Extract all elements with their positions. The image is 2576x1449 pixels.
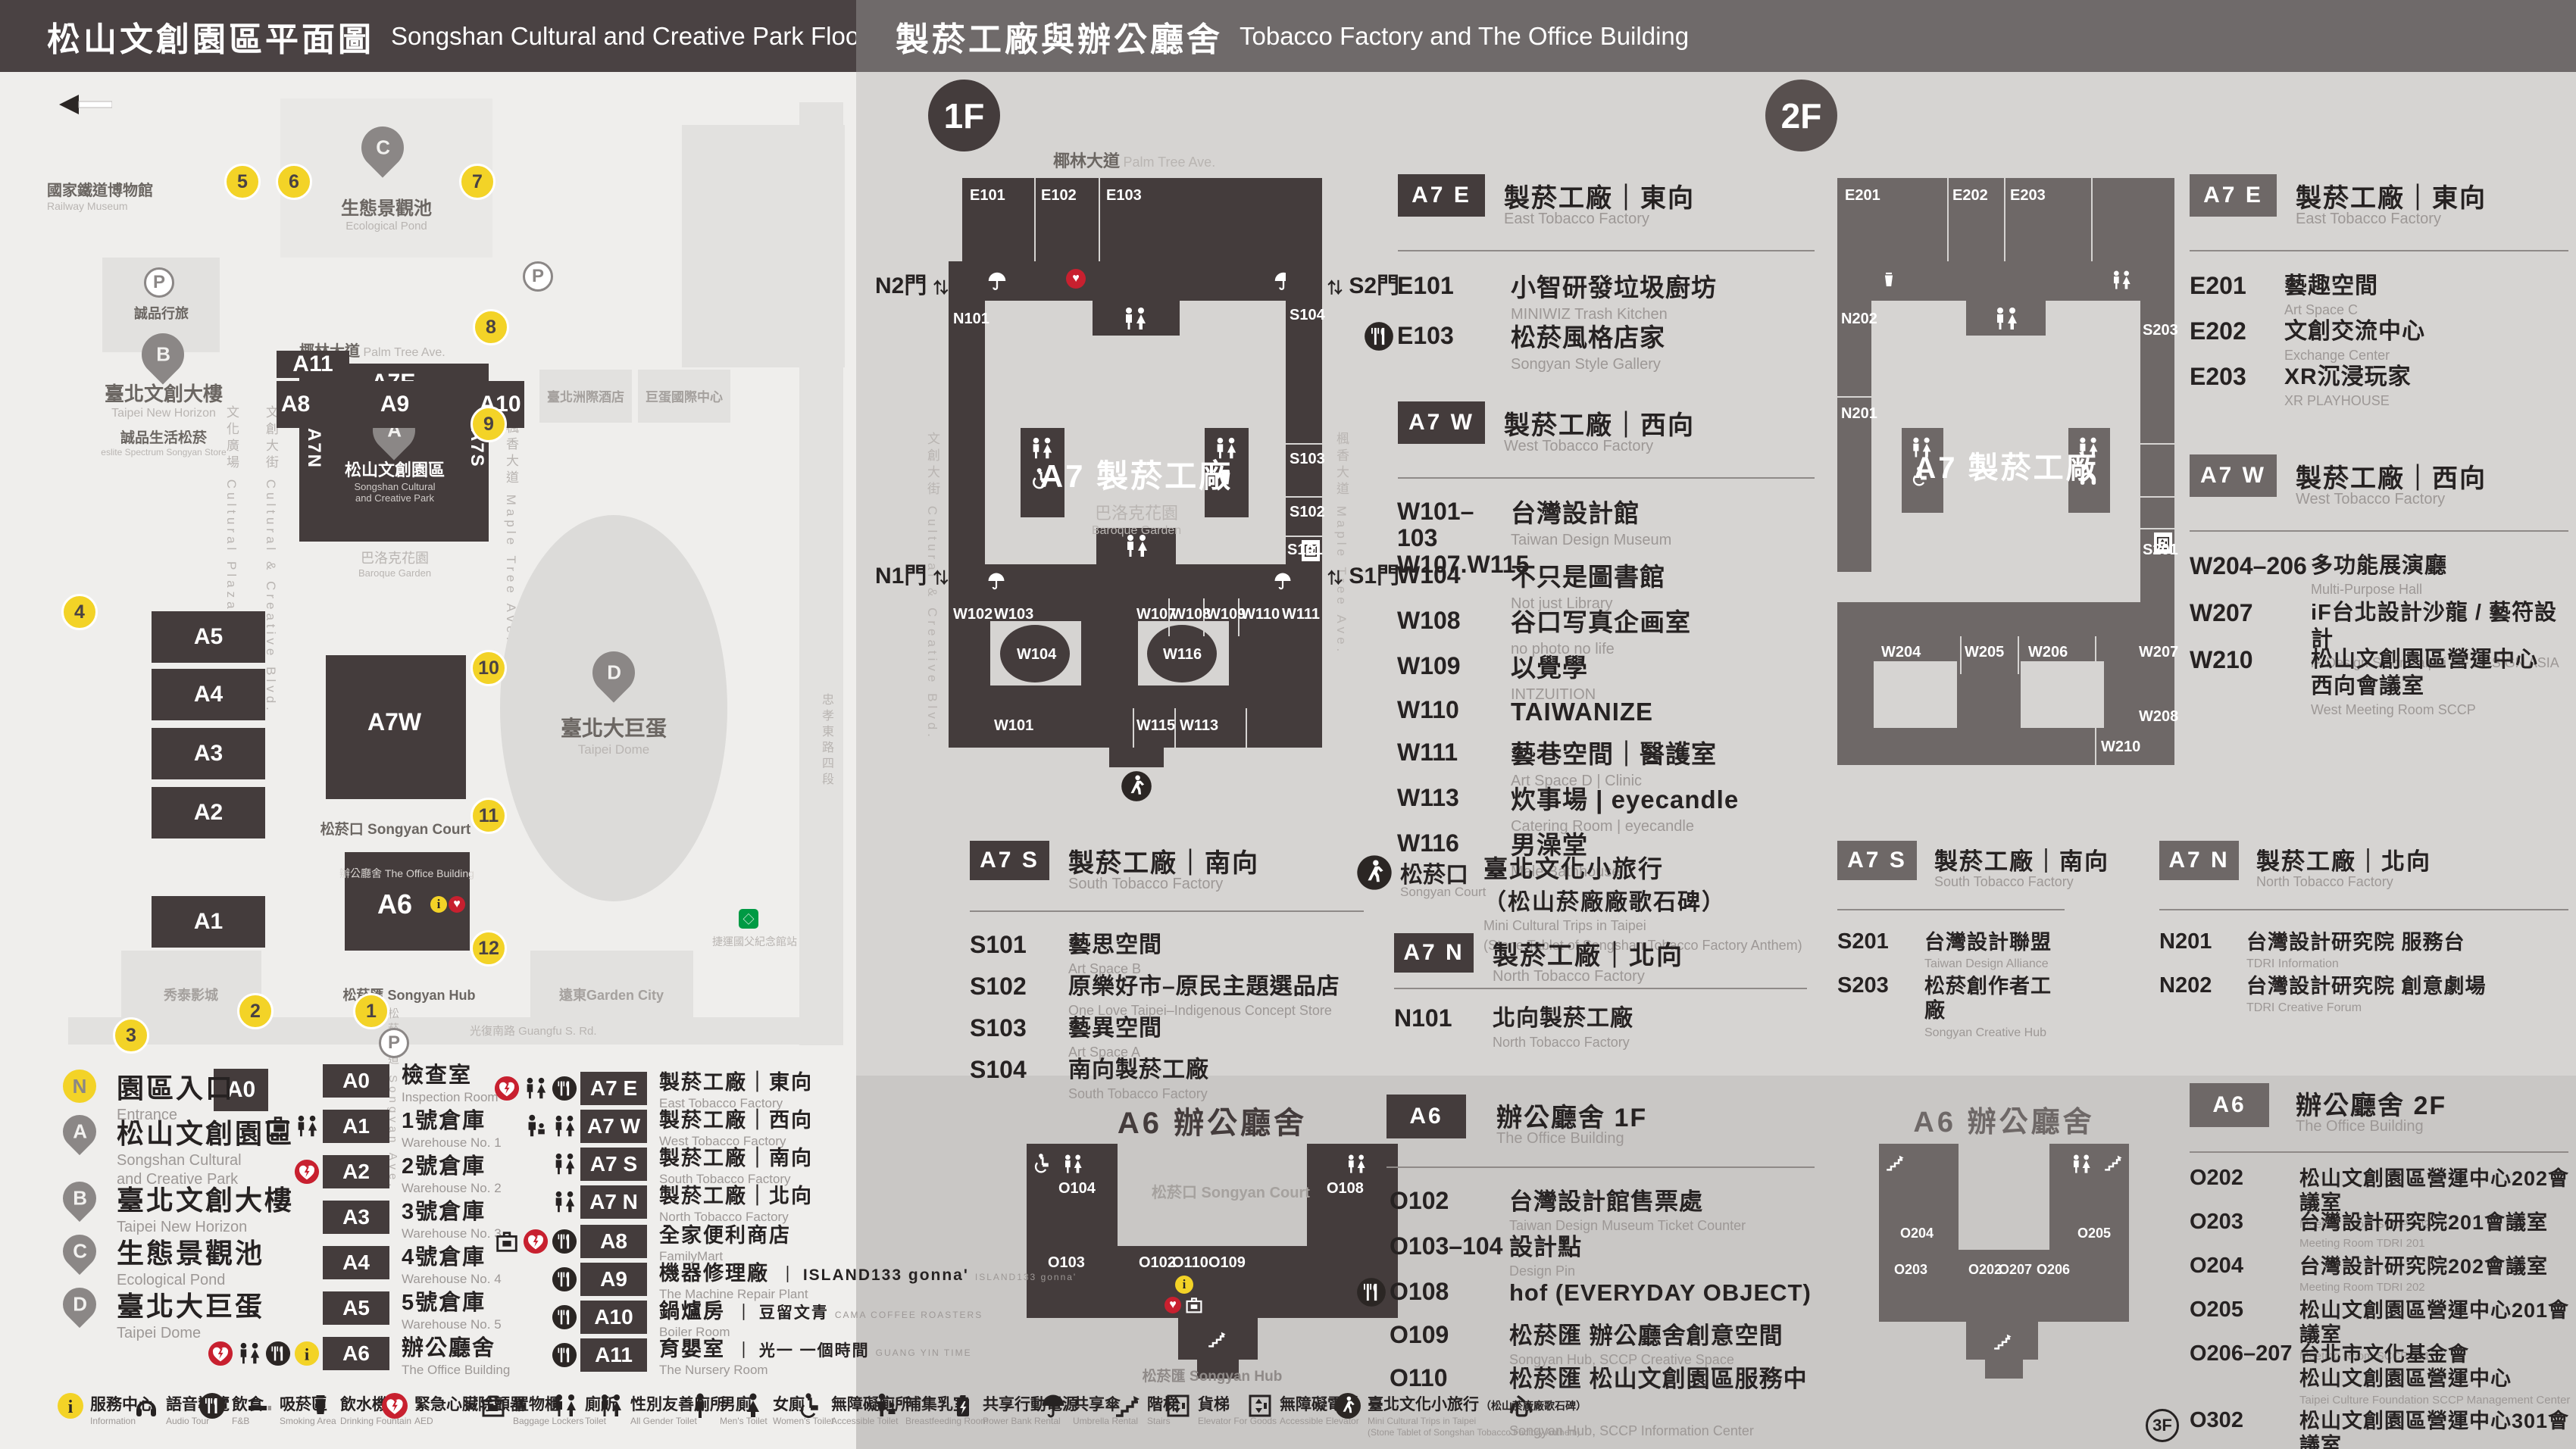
building-code-badge: A11 <box>580 1338 647 1372</box>
legend-pin-badge: N <box>63 1070 96 1103</box>
songyan-court-walk-icon <box>1121 770 1152 802</box>
entrance-number-badge: 4 <box>61 594 98 630</box>
park-map: 國家鐵道博物館 Railway Museum C 生態景觀池 Ecologica… <box>0 72 856 1057</box>
entrance-number-badge: 11 <box>470 798 507 834</box>
a7n-title-zh-2f: 製菸工廠｜北向 <box>2256 842 2431 876</box>
stairs-icon <box>2103 1153 2123 1173</box>
a7e-title-zh: 製菸工廠｜東向 <box>1504 177 1695 214</box>
map-a6-2f: A6 辦公廳舍 O204O205O203O202O207O206 <box>1879 1083 2129 1394</box>
umbrella-icon <box>1273 571 1293 591</box>
list-1f-a7n: A7 N 製菸工廠｜北向 North Tobacco Factory N101 … <box>1394 933 1818 1077</box>
parking-icon: P <box>144 267 174 298</box>
facility-icon <box>307 1392 334 1419</box>
maple-ave-label-1f: 楓香大道 Maple Tree Ave. <box>1332 432 1351 655</box>
map-room-label: O102 <box>1139 1254 1176 1272</box>
a7w-title-en-2f: West Tobacco Factory <box>2296 491 2445 508</box>
a6-badge-2f: A6 <box>2190 1083 2269 1127</box>
baroque-garden-label-1f: 巴洛克花園 Baroque Garden <box>1092 500 1181 538</box>
map-room-label: S201 <box>2143 542 2178 559</box>
facility-icons <box>205 1113 320 1139</box>
park-building-block: A11 <box>277 351 349 378</box>
room-list-item: N201 台灣設計研究院 服務台TDRI Information <box>2159 930 2465 972</box>
zhongxiao-rd-label: 忠孝東路四段 <box>817 693 835 789</box>
a6-title-en: The Office Building <box>1496 1130 1624 1148</box>
facility-icon <box>872 1392 899 1419</box>
parking-icon: P <box>379 1028 409 1058</box>
aed-icon: ♥ <box>1066 269 1086 289</box>
toilet-icon <box>1121 305 1149 333</box>
court-line1: 臺北文化小旅行 <box>1483 850 1664 885</box>
legend-pin-badge: D <box>56 1281 103 1328</box>
map-room-label: E201 <box>1845 187 1880 205</box>
baroque-garden-label: 巴洛克花園 Baroque Garden <box>358 548 431 579</box>
facility-icon <box>739 1392 767 1419</box>
mrt-logo-icon: ◇ <box>739 909 758 929</box>
entrance-number-badge: 8 <box>473 309 509 345</box>
facility-icons <box>462 1076 577 1101</box>
cultural-plaza-label: 文化廣場 Cultural Plaza <box>222 405 241 613</box>
dome-center-label: 巨蛋國際中心 <box>646 386 723 405</box>
room-list-item: S201 台灣設計聯盟Taiwan Design Alliance <box>1837 930 2052 972</box>
legend-building-row: A3 3號倉庫 Warehouse No. 3 <box>205 1198 502 1236</box>
map-room-label: O202 <box>1968 1262 2002 1278</box>
map-room-label: O206 <box>2037 1262 2070 1278</box>
room-list-item: O103–104 設計點Design Pin <box>1356 1233 1582 1280</box>
umbrella-icon <box>986 270 1008 292</box>
list-2f-a7w: A7 W 製菸工廠｜西向 West Tobacco Factory W204–2… <box>2190 454 2576 773</box>
legend-building-row: A4 4號倉庫 Warehouse No. 4 <box>205 1244 502 1282</box>
map-a6-1f: A6 辦公廳舍 松菸口 Songyan Court i ♥ 松菸匯 Songya… <box>1027 1083 1398 1386</box>
entrance-number-badge: 3 <box>113 1017 149 1054</box>
map-room-label: W107 <box>1136 606 1176 623</box>
a6-map-title-2f: A6 辦公廳舍 <box>1913 1098 2094 1140</box>
legend-building-row: A11 育嬰室｜ 光一 一個時間GUANG YIN TIME The Nurse… <box>462 1336 972 1374</box>
umbrella-icon <box>986 571 1006 591</box>
room-list-item: O302 松山文創園區營運中心301會議室Meeting Room SCCP 3… <box>2190 1409 2576 1449</box>
map-room-label: W206 <box>2028 644 2068 661</box>
room-list-item: E103 松菸風格店家Songyan Style Gallery <box>1364 323 1665 376</box>
mrt-station-label: 捷運國父紀念館站 <box>712 934 797 949</box>
a7w-badge-2f: A7 W <box>2190 454 2277 497</box>
building-code-badge: A2 <box>323 1155 389 1188</box>
park-building-block: A3 <box>152 728 265 779</box>
legend-building-row: A7 S 製菸工廠｜南向 South Tobacco Factory <box>462 1145 830 1183</box>
parking-icon: P <box>523 261 553 292</box>
page-title-en: Songshan Cultural and Creative Park Floo… <box>391 22 924 51</box>
list-1f-a7w: A7 W 製菸工廠｜西向 West Tobacco Factory W101–1… <box>1364 401 1818 901</box>
room-list-item: N202 台灣設計研究院 創意劇場TDRI Creative Forum <box>2159 974 2487 1016</box>
toilet-icon <box>1993 305 2020 333</box>
list-2f-a7e: A7 E 製菸工廠｜東向 East Tobacco Factory E201 藝… <box>2190 174 2576 432</box>
legend-building-row: A10 鍋爐房｜ 豆留文青CAMA COFFEE ROASTERS Boiler… <box>462 1298 983 1336</box>
map-room-label: W101 <box>994 717 1033 735</box>
a6-map-title: A6 辦公廳舍 <box>1118 1098 1307 1142</box>
facility-icon <box>199 1392 226 1419</box>
map-room-label: N201 <box>1841 405 1877 423</box>
legend-building-row: A9 機器修理廠｜ ISLAND133 gonna'ISLAND133 gonn… <box>462 1260 1077 1298</box>
map-room-label: O205 <box>2077 1226 2111 1241</box>
facility-icon <box>1246 1392 1274 1419</box>
stairs-icon <box>1207 1329 1227 1349</box>
map-room-label: E103 <box>1106 187 1142 205</box>
aed-icon: ♥ <box>449 896 465 913</box>
railway-museum-label: 國家鐵道博物館 Railway Museum <box>47 178 153 212</box>
toilet-icon <box>2110 269 2133 292</box>
list-a6-1f: A6 辦公廳舍 1F The Office Building O102 台灣設計… <box>1356 1091 1826 1409</box>
legend-building-row: A1 1號倉庫 Warehouse No. 1 <box>205 1107 502 1145</box>
park-building-block: A9 <box>317 381 473 428</box>
a7w-badge: A7 W <box>1398 401 1485 444</box>
legend-pin-badge: B <box>56 1175 103 1222</box>
new-horizon-label: 臺北文創大樓 Taipei New Horizon 誠品生活松菸 eslite … <box>101 379 226 457</box>
stairs-icon <box>1993 1332 2012 1351</box>
floor-badge-2f: 2F <box>1765 80 1837 151</box>
map-room-label: S104 <box>1290 307 1325 324</box>
park-building-block: A2 <box>152 787 265 838</box>
a7n-map-label: A7N <box>303 428 324 469</box>
hotel-label: 臺北洲際酒店 <box>547 386 624 405</box>
room-list-item: E101 小智研發垃圾廚坊MINIWIZ Trash Kitchen <box>1364 273 1717 326</box>
entrance-number-badge: 9 <box>470 406 507 442</box>
a7-center-label-2f: A7 製菸工廠 <box>1914 443 2098 487</box>
facility-icon <box>597 1392 624 1419</box>
facility-icons <box>205 1159 320 1185</box>
map-room-label: W102 <box>953 606 993 623</box>
map-room-label: W204 <box>1881 644 1921 661</box>
a7e-title-zh-2f: 製菸工廠｜東向 <box>2296 177 2487 214</box>
court-label: 松菸口 Songyan Court <box>1152 1180 1310 1202</box>
map-room-label: S102 <box>1290 504 1325 521</box>
entrance-number-badge: 12 <box>470 930 507 967</box>
header-left: 松山文創園區平面圖 Songshan Cultural and Creative… <box>0 0 856 72</box>
room-list-item: N101 北向製菸工廠North Tobacco Factory <box>1394 1005 1633 1051</box>
building-code-badge: A7 W <box>580 1110 647 1143</box>
map-room-label: E203 <box>2010 187 2046 205</box>
room-list-item: O108 hof (EVERYDAY OBJECT) <box>1356 1279 1812 1309</box>
map-2f: E201E202E203N202N201S203S201W204W205W206… <box>1837 178 2174 807</box>
legend-building-row: A7 E 製菸工廠｜東向 East Tobacco Factory <box>462 1070 830 1107</box>
aed-icon: ♥ <box>1165 1297 1181 1313</box>
garden-city-label: 遠東Garden City <box>559 985 664 1004</box>
facility-icons <box>462 1304 577 1330</box>
list-2f-a7n: A7 N 製菸工廠｜北向 North Tobacco Factory N201 … <box>2159 833 2576 1045</box>
palm-ave-label-1f: 椰林大道 Palm Tree Ave. <box>1053 148 1215 172</box>
legend-building-row: A5 5號倉庫 Warehouse No. 5 <box>205 1289 502 1327</box>
building-code-badge: A1 <box>323 1110 389 1143</box>
map-room-label: W113 <box>1180 717 1218 735</box>
legend-building-row: A0 檢查室 Inspection Room <box>205 1062 499 1100</box>
facility-icons <box>205 1341 320 1366</box>
map-room-label: O204 <box>1900 1226 1934 1241</box>
legend-strip-item: 臺北文化小旅行（松山菸廠廠歌石碑） Mini Cultural Trips in… <box>1334 1392 1587 1438</box>
floor-3f-badge: 3F <box>2146 1409 2179 1442</box>
facility-icon <box>133 1392 160 1419</box>
a7-center-label-1f: A7 製菸工廠 <box>1040 451 1233 497</box>
court-en1: Mini Cultural Trips in Taipei <box>1483 918 1646 934</box>
entrance-number-badge: 2 <box>237 993 274 1029</box>
a7n-badge: A7 N <box>1394 933 1474 973</box>
facility-icon <box>381 1392 408 1419</box>
section-title-en: Tobacco Factory and The Office Building <box>1240 22 1689 51</box>
a6-title-en-2f: The Office Building <box>2296 1118 2424 1135</box>
legend-building-row: A2 2號倉庫 Warehouse No. 2 <box>205 1153 502 1191</box>
map-room-label: S101 <box>1287 542 1323 559</box>
taipei-dome-label: 臺北大巨蛋 Taipei Dome <box>561 712 667 757</box>
facility-icons <box>462 1189 577 1215</box>
guangfu-rd-label: 光復南路 Guangfu S. Rd. <box>470 1023 597 1038</box>
list-a6-2f: A6 辦公廳舍 2F The Office Building 3F O202 松… <box>2190 1076 2576 1447</box>
map-room-label: O110 <box>1172 1254 1208 1272</box>
building-code-badge: A3 <box>323 1201 389 1234</box>
park-building-block: A8 <box>277 381 314 428</box>
court-line2: （松山菸廠廠歌石碑） <box>1483 883 1726 917</box>
facility-icon <box>57 1392 84 1419</box>
room-list-item: O203 台灣設計研究院201會議室Meeting Room TDRI 201 <box>2190 1210 2548 1251</box>
a7n-title-zh: 製菸工廠｜北向 <box>1493 935 1683 972</box>
a7e-badge: A7 E <box>1398 174 1485 217</box>
building-code-badge: A7 N <box>580 1185 647 1219</box>
map-room-label: W205 <box>1965 644 2004 661</box>
room-list-item: E202 文創交流中心Exchange Center <box>2190 318 2425 364</box>
a7s-title-zh-2f: 製菸工廠｜南向 <box>1934 842 2109 876</box>
building-code-badge: A6 <box>323 1337 389 1370</box>
facility-icon <box>480 1392 507 1419</box>
map-room-label: W210 <box>2101 739 2140 756</box>
park-building-block: A1 <box>152 896 265 948</box>
facility-icons <box>462 1266 577 1292</box>
list-2f-a7s: A7 S 製菸工廠｜南向 South Tobacco Factory S201 … <box>1837 833 2072 1045</box>
room-icon <box>1356 1277 1390 1307</box>
court-en: Songyan Court <box>1400 885 1486 900</box>
building-code-badge: A9 <box>580 1263 647 1296</box>
door-n1: N1門 ⇅ <box>875 557 949 590</box>
facility-icon <box>1334 1392 1361 1419</box>
entrance-number-badge: 7 <box>459 164 496 200</box>
map-room-label: W109 <box>1206 606 1246 623</box>
map-room-label: E102 <box>1041 187 1077 205</box>
map-room-label: W103 <box>994 606 1033 623</box>
building-code-badge: A7 S <box>580 1148 647 1181</box>
building-code-badge: A7 E <box>580 1072 647 1105</box>
room-list-item: S103 藝異空間Art Space A <box>970 1015 1162 1061</box>
header-right: 製菸工廠與辦公廳舍 Tobacco Factory and The Office… <box>856 0 2576 72</box>
a7s-badge-2f: A7 S <box>1837 841 1917 880</box>
map-room-label: W111 <box>1282 606 1320 623</box>
sccp-label: 松山文創園區 Songshan Cultural and Creative Pa… <box>345 457 445 504</box>
facility-icon <box>949 1392 977 1419</box>
a7e-title-en: East Tobacco Factory <box>1504 211 1649 228</box>
a7w-title-zh: 製菸工廠｜西向 <box>1504 404 1695 442</box>
map-room-label: W208 <box>2139 708 2178 726</box>
room-list-item: O206–207 台北市文化基金會松山文創園區營運中心Taipei Cultur… <box>2190 1342 2570 1407</box>
floor-badge-1f: 1F <box>928 80 1000 151</box>
section-title-zh: 製菸工廠與辦公廳舍 <box>896 12 1223 61</box>
room-list-item: W110 TAIWANIZE <box>1364 697 1653 729</box>
entrance-number-badge: 6 <box>276 164 312 200</box>
legend-building-row: A8 全家便利商店 FamilyMart <box>462 1223 808 1260</box>
a6-badge: A6 <box>1386 1095 1466 1138</box>
building-code-badge: A5 <box>323 1291 389 1325</box>
map-room-label: S203 <box>2143 322 2178 339</box>
map-room-label: W207 <box>2139 644 2178 661</box>
a7w-map-label: A7W <box>367 708 421 736</box>
toilet-icon <box>2070 1153 2093 1176</box>
room-list-item: O102 台灣設計館售票處Taiwan Design Museum Ticket… <box>1356 1188 1746 1235</box>
room-list-item: W210 松山文創園區營運中心西向會議室West Meeting Room SC… <box>2190 647 2538 718</box>
park-building-block: A5 <box>152 611 265 663</box>
a7n-title-en: North Tobacco Factory <box>1493 968 1645 985</box>
legend-building-row: A7 W 製菸工廠｜西向 West Tobacco Factory <box>462 1107 830 1145</box>
room-list-item: O109 松菸匯 辦公廳舍創意空間Songyan Hub, SCCP Creat… <box>1356 1322 1784 1369</box>
list-1f-a7s: A7 S 製菸工廠｜南向 South Tobacco Factory S101 … <box>970 833 1371 1076</box>
legend-pin-badge: C <box>56 1228 103 1275</box>
a6-office-label: 辦公廳舍 The Office Building <box>339 866 474 881</box>
map-room-label: O207 <box>1999 1262 2032 1278</box>
cc-blvd-label: 文創大街 Cultural & Creative Blvd. <box>261 405 280 714</box>
a7e-title-en-2f: East Tobacco Factory <box>2296 211 2441 228</box>
a7w-title-zh-2f: 製菸工廠｜西向 <box>2296 457 2487 495</box>
facility-icon <box>1114 1392 1141 1419</box>
a6-map-label: A6 <box>377 888 412 920</box>
facility-icons <box>462 1342 577 1368</box>
facility-icon <box>246 1392 274 1419</box>
room-list-item: S203 松菸創作者工廠Songyan Creative Hub <box>1837 974 2072 1040</box>
cinema-label: 秀泰影城 <box>164 985 218 1004</box>
room-list-item: S101 藝思空間Art Space B <box>970 932 1162 978</box>
facility-icons <box>462 1151 577 1177</box>
stairs-icon <box>1885 1153 1905 1173</box>
facility-icon <box>798 1392 825 1419</box>
entrance-number-badge: 5 <box>224 164 261 200</box>
legend-pin-badge: A <box>56 1108 103 1155</box>
drinking-fountain-icon <box>1879 270 1899 290</box>
a7s-title-en: South Tobacco Factory <box>1068 876 1223 893</box>
a7s-badge: A7 S <box>970 841 1049 880</box>
map-room-label: N101 <box>953 311 989 328</box>
eslite-hotel-label: 誠品行旅 <box>134 303 189 323</box>
songyan-court-icon <box>1356 854 1393 891</box>
facility-icon <box>1165 1392 1192 1419</box>
map-room-label: S103 <box>1290 451 1325 468</box>
building-block <box>682 125 845 367</box>
pond-label: 生態景觀池 Ecological Pond <box>341 193 432 233</box>
north-arrow-icon <box>59 95 112 114</box>
toilet-icon <box>1061 1153 1084 1176</box>
hub-label: 松菸匯 Songyan Hub <box>1143 1365 1283 1385</box>
list-1f-a7e: A7 E 製菸工廠｜東向 East Tobacco Factory E101 小… <box>1364 174 1818 401</box>
map-room-label: O203 <box>1894 1262 1927 1278</box>
facility-icon <box>1039 1392 1067 1419</box>
map-room-label: W110 <box>1241 606 1280 623</box>
a7n-badge-2f: A7 N <box>2159 841 2239 880</box>
map-room-label: W115 <box>1136 717 1175 735</box>
room-list-item: S102 原樂好市–原民主題選品店One Love Taipei–Indigen… <box>970 973 1340 1020</box>
information-icon: i <box>1175 1276 1193 1294</box>
room-list-item: W204–206 多功能展演廳Multi-Purpose Hall <box>2190 553 2447 598</box>
legend-building-row: A7 N 製菸工廠｜北向 North Tobacco Factory <box>462 1183 830 1221</box>
page-title-zh: 松山文創園區平面圖 <box>47 12 374 61</box>
room-icon <box>1364 321 1397 351</box>
wheelchair-icon <box>1033 1153 1054 1174</box>
map-room-label: E101 <box>970 187 1005 205</box>
facility-icon <box>552 1392 579 1419</box>
information-icon: i <box>430 896 447 913</box>
facility-icon <box>686 1392 714 1419</box>
building-code-badge: A8 <box>580 1225 647 1258</box>
room-list-item: E201 藝趣空間Art Space C <box>2190 273 2378 319</box>
map-room-label: E202 <box>1952 187 1988 205</box>
a7s-title-en-2f: South Tobacco Factory <box>1934 874 2074 890</box>
a7w-title-en: West Tobacco Factory <box>1504 438 1653 455</box>
door-n2: N2門 ⇅ <box>875 267 949 300</box>
entrance-number-badge: 1 <box>353 993 389 1029</box>
a7s-title-zh: 製菸工廠｜南向 <box>1068 842 1259 879</box>
map-room-label: W108 <box>1171 606 1211 623</box>
room-list-item: E203 XR沉浸玩家XR PLAYHOUSE <box>2190 364 2412 410</box>
map-room-label: W104 <box>1017 646 1056 664</box>
map-room-label: W116 <box>1163 646 1202 664</box>
building-code-badge: A4 <box>323 1246 389 1279</box>
taipei-dome-shape <box>500 515 727 901</box>
facility-icons <box>462 1229 577 1254</box>
a7n-title-en-2f: North Tobacco Factory <box>2256 874 2393 890</box>
entrance-number-badge: 10 <box>470 650 507 686</box>
map-room-label: N202 <box>1841 311 1877 328</box>
baggage-locker-icon <box>1184 1295 1204 1315</box>
park-building-block: A4 <box>152 669 265 720</box>
room-list-item: O204 台灣設計研究院202會議室Meeting Room TDRI 202 <box>2190 1254 2548 1294</box>
floor-plan-poster: 松山文創園區平面圖 Songshan Cultural and Creative… <box>0 0 2576 1449</box>
map-room-label: O104 <box>1058 1180 1096 1198</box>
a7e-badge-2f: A7 E <box>2190 174 2277 217</box>
building-code-badge: A10 <box>580 1301 647 1334</box>
a6-title-zh: 辦公廳舍 1F <box>1496 1097 1647 1134</box>
songyan-court-label: 松菸口 Songyan Court <box>320 818 470 838</box>
building-code-badge: A0 <box>323 1064 389 1098</box>
a6-title-zh-2f: 辦公廳舍 2F <box>2296 1085 2446 1122</box>
map-room-label: O109 <box>1208 1254 1246 1272</box>
facility-icons <box>462 1113 577 1139</box>
